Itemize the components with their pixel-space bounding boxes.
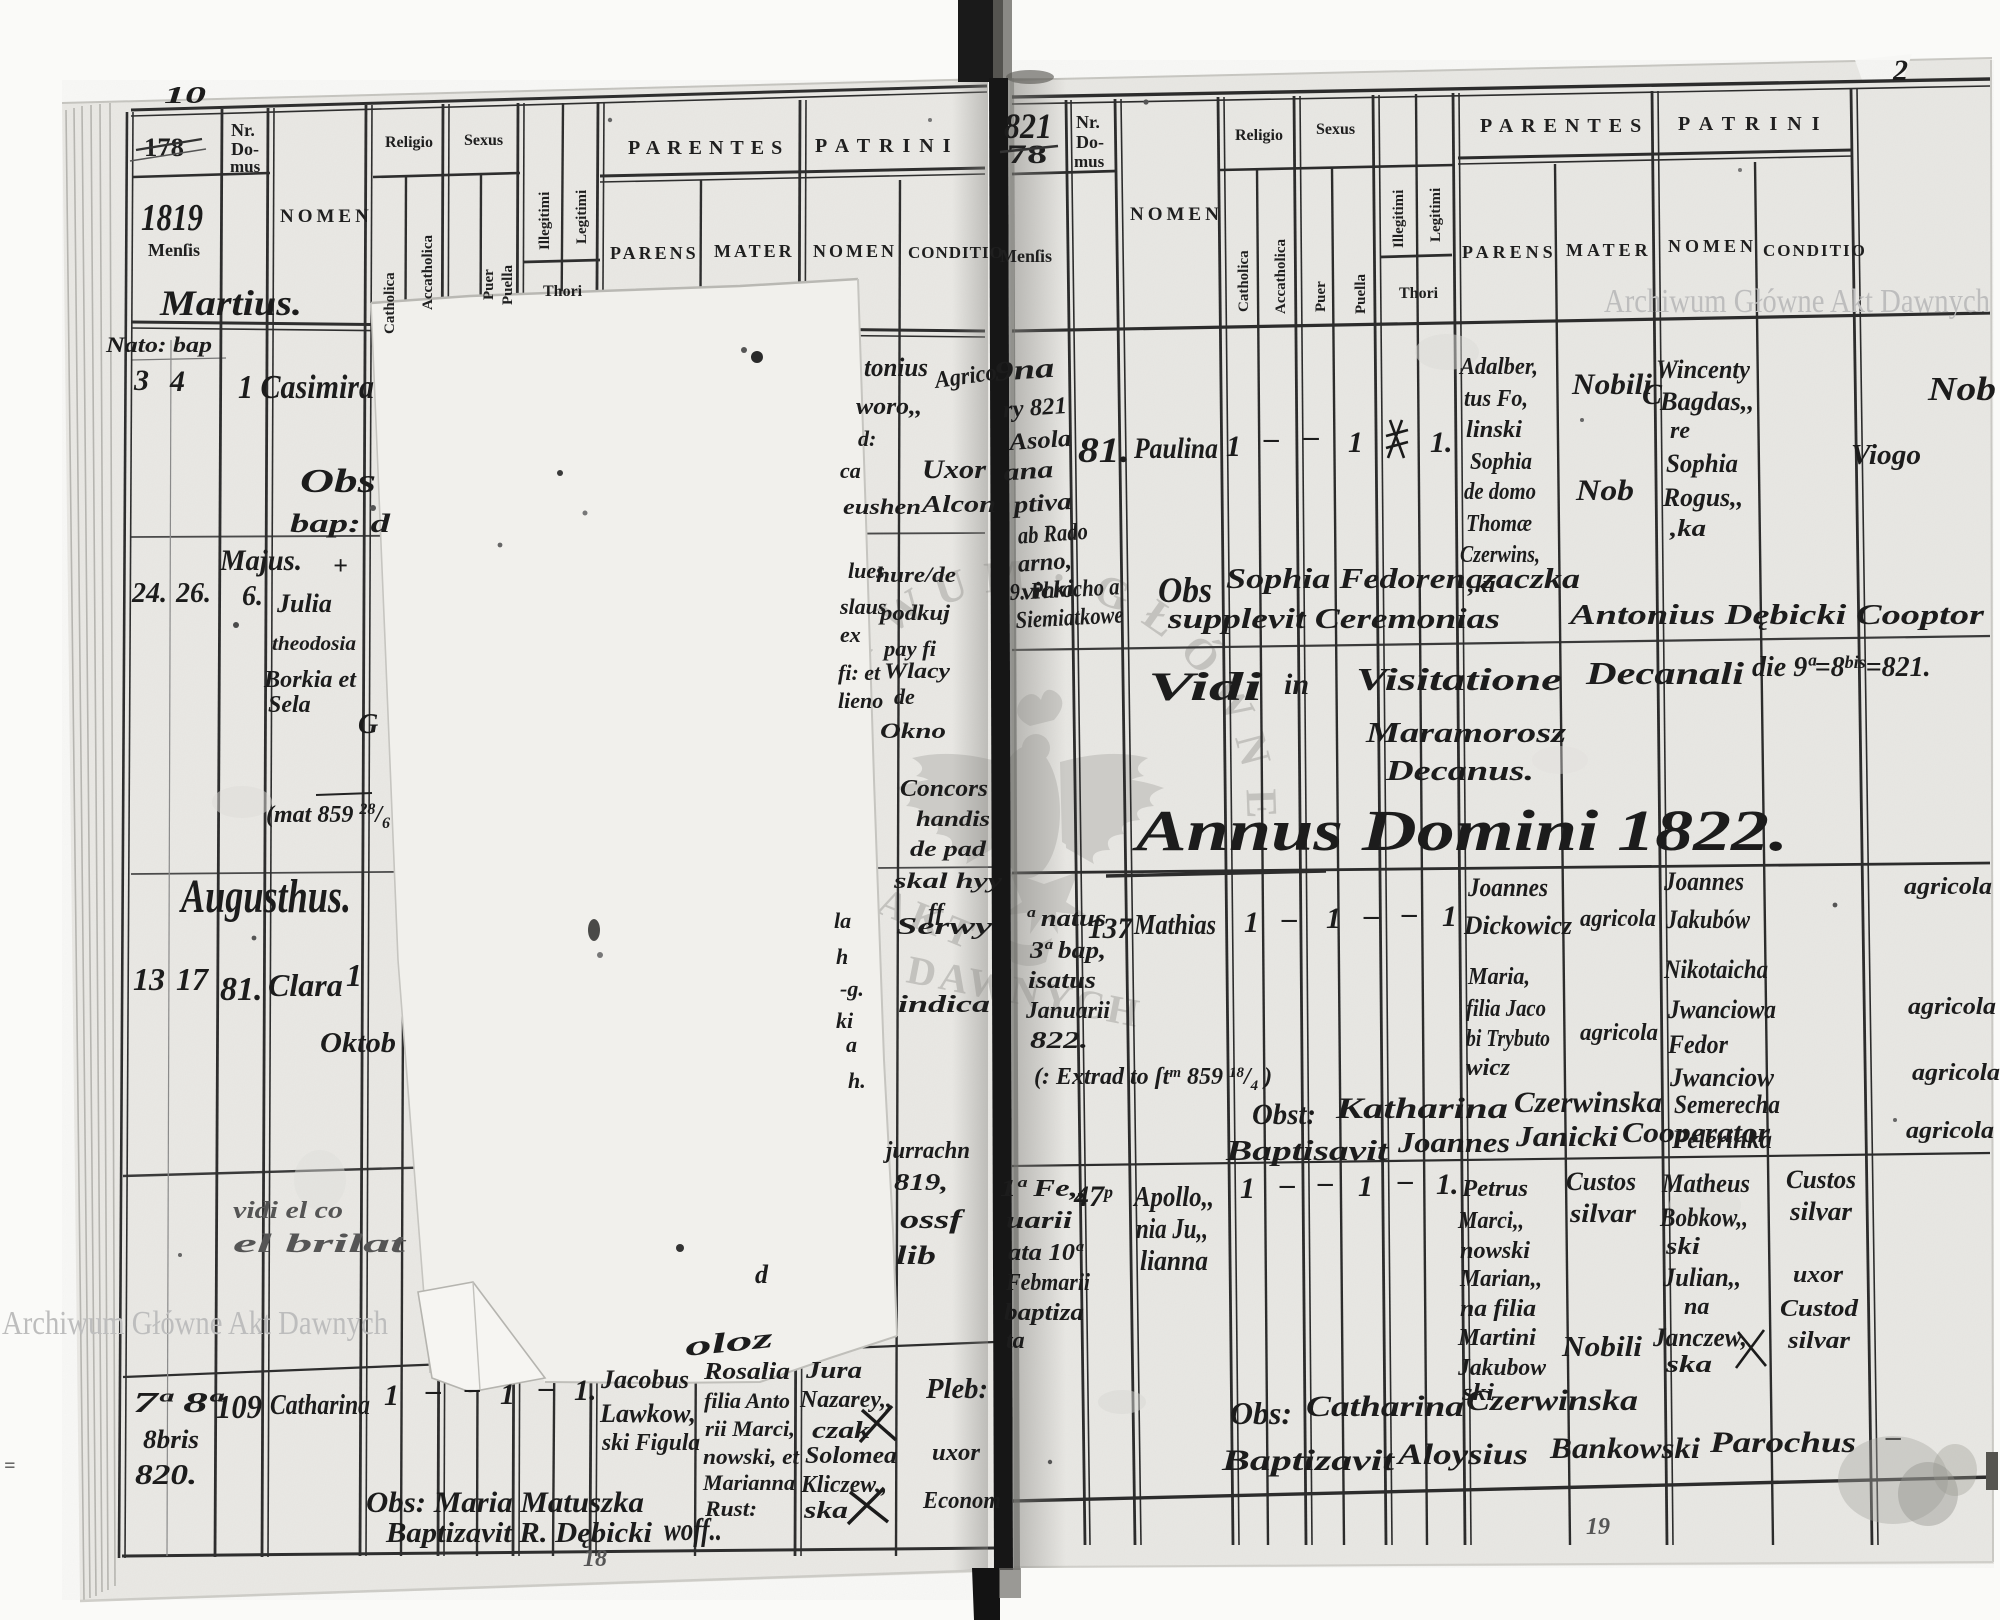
svg-text:Semerecha: Semerecha (1674, 1090, 1780, 1119)
svg-text:G: G (358, 709, 378, 740)
svg-text:Rogus,,: Rogus,, (1662, 483, 1743, 512)
svg-text:wicz: wicz (1466, 1055, 1511, 1081)
svg-text:MATER: MATER (714, 241, 795, 261)
svg-text:h: h (836, 944, 848, 969)
svg-text:hure/de: hure/de (876, 562, 956, 587)
svg-text:Nazarey,,: Nazarey,, (799, 1387, 892, 1413)
svg-text:Jacobus: Jacobus (600, 1365, 689, 1394)
svg-text:81.: 81. (220, 971, 263, 1008)
svg-text:Okno: Okno (880, 718, 946, 743)
svg-text:ab Rado: ab Rado (1017, 519, 1089, 550)
svg-text:Sophia Fedorenczaczka: Sophia Fedorenczaczka (1226, 564, 1580, 595)
svg-text:Jakubów: Jakubów (1665, 905, 1750, 934)
svg-text:silvar: silvar (1787, 1328, 1851, 1354)
svg-text:Legitimi: Legitimi (1428, 188, 1444, 242)
svg-text:ana: ana (1003, 457, 1055, 486)
svg-text:Martini: Martini (1457, 1325, 1536, 1351)
svg-text:nowski: nowski (1460, 1238, 1530, 1264)
svg-text:die 9ª=8bis=821.: die 9ª=8bis=821. (1752, 652, 1931, 683)
svg-text:woro,,: woro,, (856, 394, 922, 420)
svg-text:-g.: -g. (840, 976, 864, 1001)
svg-text:Catholica: Catholica (382, 272, 398, 334)
svg-text:Custos: Custos (1786, 1165, 1856, 1194)
svg-text:linski: linski (1466, 417, 1522, 443)
svg-text:Illegitimi: Illegitimi (537, 192, 553, 250)
svg-text:Jwanciowa: Jwanciowa (1667, 995, 1776, 1024)
svg-text:Econom: Econom (922, 1488, 1001, 1514)
svg-text:1: 1 (384, 1379, 399, 1412)
svg-text:arno,: arno, (1017, 548, 1073, 578)
svg-text:la: la (834, 908, 851, 933)
svg-text:Mathias: Mathias (1133, 910, 1216, 941)
svg-text:–: – (1363, 899, 1379, 932)
svg-text:=: = (4, 1455, 15, 1477)
svg-text:ata 10ª: ata 10ª (1008, 1240, 1084, 1266)
svg-text:Parochus: Parochus (1709, 1426, 1856, 1459)
svg-text:PATRINI: PATRINI (815, 135, 959, 157)
svg-text:1.: 1. (574, 1374, 597, 1407)
svg-text:bap: d: bap: d (290, 509, 391, 538)
svg-text:Decanus.: Decanus. (1385, 756, 1534, 787)
svg-text:Catholica: Catholica (1236, 250, 1252, 312)
svg-text:nia Ju,,: nia Ju,, (1136, 1214, 1208, 1245)
svg-text:Majus.: Majus. (219, 544, 302, 577)
svg-text:Archiwum Główne Akt Dawnych: Archiwum Główne Akt Dawnych (2, 1305, 388, 1342)
svg-text:Puella: Puella (1353, 274, 1369, 314)
svg-text:nowski, et: nowski, et (703, 1444, 800, 1469)
svg-text:NOMEN: NOMEN (280, 206, 373, 227)
svg-text:Sophia: Sophia (1470, 449, 1532, 475)
svg-text:Annus Domini 1822.: Annus Domini 1822. (1132, 798, 1788, 863)
svg-text:indica: indica (898, 992, 990, 1018)
svg-text:ptiva: ptiva (1010, 489, 1072, 519)
svg-text:Januarii: Januarii (1025, 998, 1110, 1024)
svg-text:eushen: eushen (843, 494, 921, 519)
svg-text:woff..: woff.. (664, 1511, 722, 1547)
svg-text:Nato: bap: Nato: bap (105, 332, 212, 357)
svg-text:Wincenty: Wincenty (1656, 355, 1750, 384)
svg-text:–: – (1401, 897, 1417, 930)
svg-text:–: – (1303, 420, 1319, 453)
svg-text:1 Casimira: 1 Casimira (238, 369, 374, 406)
svg-text:1: 1 (1226, 430, 1241, 463)
svg-text:Janicki: Janicki (1515, 1122, 1618, 1153)
svg-text:Accatholica: Accatholica (1273, 239, 1289, 314)
svg-text:Nr.: Nr. (231, 120, 255, 140)
svg-text:Augusthus.: Augusthus. (179, 870, 351, 923)
svg-text:Wlacy: Wlacy (884, 658, 950, 683)
svg-text:Alcon: Alcon (919, 492, 996, 518)
svg-text:Thori: Thori (1399, 285, 1439, 302)
svg-text:Puer: Puer (1313, 281, 1329, 312)
svg-text:ta: ta (1006, 1328, 1025, 1354)
svg-text:na: na (1684, 1294, 1709, 1320)
svg-text:Sophia: Sophia (1666, 449, 1738, 478)
svg-text:filia Anto: filia Anto (704, 1388, 790, 1413)
svg-text:9na: 9na (993, 353, 1055, 388)
svg-text:Bankowski: Bankowski (1549, 1432, 1701, 1465)
svg-text:,ka: ,ka (1669, 516, 1706, 542)
svg-text:handis: handis (916, 806, 990, 831)
svg-text:Baptisavit: Baptisavit (1225, 1136, 1390, 1167)
svg-text:Julia: Julia (276, 589, 332, 618)
svg-text:Vidi: Vidi (1148, 664, 1262, 709)
svg-text:Dickowicz: Dickowicz (1463, 911, 1573, 940)
svg-text:Adalber,: Adalber, (1458, 354, 1538, 380)
svg-text:na filia: na filia (1460, 1296, 1536, 1322)
svg-text:Obst:: Obst: (1252, 1098, 1316, 1131)
svg-text:Obs: Maria Matuszka: Obs: Maria Matuszka (366, 1486, 644, 1519)
svg-text:d: d (755, 1260, 769, 1289)
svg-text:Lawkow,: Lawkow, (599, 1399, 696, 1428)
svg-text:Baptizavit R. Dębicki: Baptizavit R. Dębicki (385, 1518, 652, 1549)
svg-text:Paulina: Paulina (1133, 432, 1218, 465)
svg-text:Febmarii: Febmarii (1005, 1270, 1090, 1296)
svg-text:Religio: Religio (1235, 127, 1283, 144)
svg-text:Nikotaicha: Nikotaicha (1663, 955, 1768, 984)
svg-text:MATER: MATER (1566, 240, 1652, 260)
svg-text:–: – (1263, 422, 1279, 455)
svg-text:ski Figula: ski Figula (601, 1430, 700, 1456)
svg-text:Aloysius: Aloysius (1396, 1438, 1528, 1471)
svg-text:Nob: Nob (1575, 474, 1634, 507)
svg-text:Nobili: Nobili (1571, 368, 1653, 401)
svg-text:in: in (1284, 668, 1309, 701)
svg-text:PARENTES: PARENTES (1480, 115, 1649, 137)
svg-text:isatus: isatus (1028, 968, 1096, 994)
svg-text:Puella: Puella (500, 265, 516, 305)
svg-text:Nr.: Nr. (1076, 112, 1100, 132)
svg-text:supplevit Ceremonias: supplevit Ceremonias (1167, 604, 1500, 635)
svg-text:Serwy: Serwy (896, 914, 993, 940)
svg-text:lieno: lieno (838, 688, 883, 713)
svg-text:2: 2 (1892, 54, 1908, 87)
svg-text:Borkia et: Borkia et (263, 667, 357, 693)
svg-text:6.: 6. (242, 581, 263, 612)
svg-text:lib: lib (896, 1241, 936, 1270)
svg-text:mus: mus (230, 157, 261, 176)
svg-text:PATRINI: PATRINI (1678, 113, 1829, 135)
svg-text:Jakubow: Jakubow (1457, 1355, 1547, 1381)
svg-text:Solomea: Solomea (805, 1443, 897, 1469)
svg-text:Jura: Jura (805, 1358, 862, 1384)
svg-text:lianna: lianna (1140, 1246, 1208, 1277)
svg-text:ki: ki (836, 1008, 854, 1033)
svg-text:bi Trybuto: bi Trybuto (1466, 1026, 1550, 1052)
svg-text:1: 1 (1244, 906, 1259, 939)
svg-text:agricola: agricola (1904, 874, 1992, 900)
svg-text:Archiwum Główne Akt Dawnych: Archiwum Główne Akt Dawnych (1604, 283, 1990, 320)
svg-text:Accatholica: Accatholica (420, 235, 436, 310)
svg-text:ski: ski (1665, 1234, 1701, 1260)
svg-text:7ª 8ª: 7ª 8ª (133, 1388, 225, 1419)
svg-text:filia Jaco: filia Jaco (1466, 996, 1546, 1022)
svg-text:agricola: agricola (1908, 994, 1996, 1020)
svg-text:–: – (425, 1374, 441, 1407)
svg-text:NOMEN: NOMEN (1130, 204, 1223, 225)
svg-text:+: + (333, 551, 348, 580)
svg-text:PARENS: PARENS (610, 243, 699, 263)
svg-text:baptiza: baptiza (1004, 1300, 1084, 1326)
svg-text:Thori: Thori (543, 283, 583, 300)
svg-text:ry 821: ry 821 (1002, 393, 1068, 423)
svg-text:137: 137 (1088, 912, 1133, 945)
svg-text:Puer: Puer (481, 269, 497, 300)
svg-text:1: 1 (346, 957, 362, 993)
svg-text:Petrus: Petrus (1461, 1176, 1528, 1202)
svg-text:1.: 1. (1436, 1168, 1459, 1201)
svg-text:Legitimi: Legitimi (574, 190, 590, 244)
svg-text:Obs:: Obs: (1230, 1395, 1292, 1431)
svg-text:Catharina: Catharina (270, 1390, 370, 1421)
svg-text:Decanali: Decanali (1585, 655, 1744, 691)
svg-text:agricola: agricola (1912, 1060, 2000, 1086)
svg-text:ska: ska (1665, 1352, 1712, 1378)
svg-text:–: – (1279, 1168, 1295, 1201)
svg-text:Thomæ: Thomæ (1466, 511, 1532, 537)
svg-text:h.: h. (848, 1068, 866, 1093)
svg-text:1819: 1819 (141, 197, 203, 239)
svg-text:Joannes: Joannes (1467, 873, 1548, 902)
svg-text:822.: 822. (1030, 1028, 1088, 1054)
svg-text:Jwanciow: Jwanciow (1669, 1063, 1775, 1092)
svg-text:jurrachn: jurrachn (882, 1138, 970, 1164)
svg-text:agricola: agricola (1906, 1118, 1994, 1144)
svg-text:Menſis: Menſis (1000, 246, 1052, 266)
svg-text:Antonius Dębicki Cooptor: Antonius Dębicki Cooptor (1567, 600, 1985, 631)
svg-text:Rosalia: Rosalia (703, 1359, 790, 1385)
svg-text:820.: 820. (135, 1460, 197, 1491)
svg-text:tus Fo,: tus Fo, (1464, 386, 1528, 412)
svg-text:ca: ca (840, 458, 861, 483)
svg-text:Do-: Do- (1076, 132, 1104, 152)
svg-text:–: – (1281, 902, 1297, 935)
svg-text:Kliczew,,: Kliczew,, (800, 1472, 887, 1498)
svg-text:tonius: tonius (864, 353, 928, 382)
svg-text:Custod: Custod (1780, 1296, 1859, 1322)
svg-text:Marci,,: Marci,, (1457, 1208, 1524, 1234)
svg-text:–: – (1317, 1166, 1333, 1199)
svg-text:1.: 1. (1430, 426, 1453, 459)
svg-text:Oktob: Oktob (320, 1028, 396, 1059)
svg-text:mus: mus (1074, 152, 1105, 171)
svg-text:1: 1 (1326, 902, 1341, 935)
svg-text:CONDITIO: CONDITIO (908, 243, 1004, 262)
svg-text:Czerwinska: Czerwinska (1466, 1384, 1638, 1417)
svg-text:NOMEN: NOMEN (813, 241, 897, 261)
svg-text:Illegitimi: Illegitimi (1391, 190, 1407, 248)
svg-text:Bagdas,,: Bagdas,, (1659, 387, 1754, 416)
svg-text:–: – (1397, 1164, 1413, 1197)
svg-text:–: – (464, 1372, 480, 1405)
svg-text:silvar: silvar (1569, 1199, 1637, 1228)
svg-text:78: 78 (1007, 140, 1047, 169)
svg-text:Concors: Concors (900, 776, 988, 802)
svg-text:uarii: uarii (1006, 1208, 1072, 1234)
svg-text:Nobili: Nobili (1561, 1332, 1642, 1363)
svg-text:Custos: Custos (1566, 1167, 1636, 1196)
svg-text:Uxor: Uxor (922, 455, 987, 484)
svg-text:Julian,,: Julian,, (1662, 1263, 1741, 1292)
svg-text:Clara: Clara (268, 967, 343, 1003)
svg-text:CONDITIO: CONDITIO (1763, 241, 1867, 260)
svg-text:a: a (846, 1032, 857, 1057)
svg-text:Obs: Obs (300, 463, 376, 500)
svg-text:skal hyy: skal hyy (893, 868, 1003, 893)
svg-text:Sexus: Sexus (1316, 121, 1355, 138)
svg-text:18: 18 (583, 1546, 607, 1572)
svg-text:NOMEN: NOMEN (1668, 236, 1757, 256)
svg-text:Marianna: Marianna (702, 1470, 795, 1495)
svg-text:vidi el co: vidi el co (233, 1198, 343, 1224)
svg-text:Marian,,: Marian,, (1459, 1266, 1542, 1292)
svg-text:26.: 26. (175, 578, 211, 609)
svg-text:3: 3 (133, 364, 149, 397)
svg-text:Catharina: Catharina (1306, 1390, 1464, 1423)
svg-text:10: 10 (164, 83, 206, 109)
svg-text:d:: d: (858, 426, 876, 451)
svg-text:1: 1 (1240, 1172, 1255, 1205)
svg-text:Matheus: Matheus (1661, 1169, 1750, 1198)
svg-text:Menſis: Menſis (148, 240, 200, 260)
svg-text:Janczew,: Janczew, (1652, 1323, 1747, 1352)
svg-text:8bris: 8bris (143, 1425, 199, 1454)
svg-text:de: de (894, 684, 915, 709)
svg-text:17: 17 (176, 961, 210, 997)
svg-text:PARENS: PARENS (1462, 242, 1557, 262)
svg-text:Pelerinka: Pelerinka (1671, 1125, 1772, 1154)
svg-text:109: 109 (216, 1389, 262, 1426)
svg-text:Joannes: Joannes (1397, 1128, 1510, 1159)
svg-text:re: re (1670, 418, 1690, 444)
svg-text:1: 1 (1358, 1170, 1373, 1203)
svg-text:4: 4 (169, 365, 185, 398)
svg-text:1: 1 (1348, 426, 1363, 459)
svg-text:Religio: Religio (385, 134, 433, 151)
svg-text:rii Marci,: rii Marci, (705, 1416, 795, 1441)
svg-text:Baptizavit: Baptizavit (1221, 1444, 1397, 1477)
svg-text:ex: ex (840, 622, 861, 647)
svg-text:uxor: uxor (1793, 1262, 1844, 1288)
svg-text:Sexus: Sexus (464, 132, 503, 149)
svg-text:agricola: agricola (1580, 906, 1656, 932)
svg-text:de domo: de domo (1464, 479, 1536, 505)
svg-text:Pleb:: Pleb: (925, 1374, 988, 1405)
svg-text:Apollo,,: Apollo,, (1132, 1182, 1214, 1213)
svg-text:Asola: Asola (1006, 426, 1072, 456)
svg-text:theodosia: theodosia (272, 633, 356, 655)
svg-text:silvar: silvar (1789, 1197, 1853, 1226)
svg-text:Maramorosz: Maramorosz (1365, 718, 1567, 749)
svg-text:Bobkow,,: Bobkow,, (1659, 1203, 1748, 1232)
svg-text:PARENTES: PARENTES (628, 137, 789, 159)
svg-text:podkuj: podkuj (878, 600, 951, 625)
svg-text:19: 19 (1586, 1514, 1610, 1540)
svg-text:ossf: ossf (900, 1205, 965, 1234)
svg-text:fi: et: fi: et (838, 660, 881, 685)
svg-text:Do-: Do- (231, 139, 259, 159)
svg-text:Maria,: Maria, (1467, 964, 1530, 990)
svg-text:13: 13 (133, 961, 165, 997)
svg-text:Visitatione: Visitatione (1356, 661, 1562, 697)
svg-text:1: 1 (500, 1378, 515, 1411)
svg-text:Joannes: Joannes (1663, 867, 1744, 896)
svg-text:24.: 24. (131, 578, 167, 609)
svg-text:819,: 819, (894, 1170, 948, 1196)
svg-text:uxor: uxor (932, 1440, 981, 1466)
svg-text:Fedor: Fedor (1667, 1030, 1729, 1059)
svg-text:Sela: Sela (268, 692, 311, 718)
svg-text:de pad: de pad (910, 836, 987, 861)
svg-text:Nob: Nob (1927, 371, 1996, 408)
svg-text:ska: ska (803, 1498, 848, 1524)
svg-text:–: – (538, 1371, 554, 1404)
svg-text:Czerwinska: Czerwinska (1514, 1086, 1662, 1119)
svg-text:1: 1 (1442, 900, 1457, 933)
svg-text:Katharina: Katharina (1335, 1092, 1508, 1125)
svg-text:Viogo: Viogo (1851, 440, 1921, 471)
svg-text:81.: 81. (1078, 430, 1130, 470)
svg-text:agricola: agricola (1580, 1020, 1658, 1046)
svg-text:el brilat: el brilat (233, 1229, 407, 1258)
svg-text:Martius.: Martius. (159, 283, 302, 323)
